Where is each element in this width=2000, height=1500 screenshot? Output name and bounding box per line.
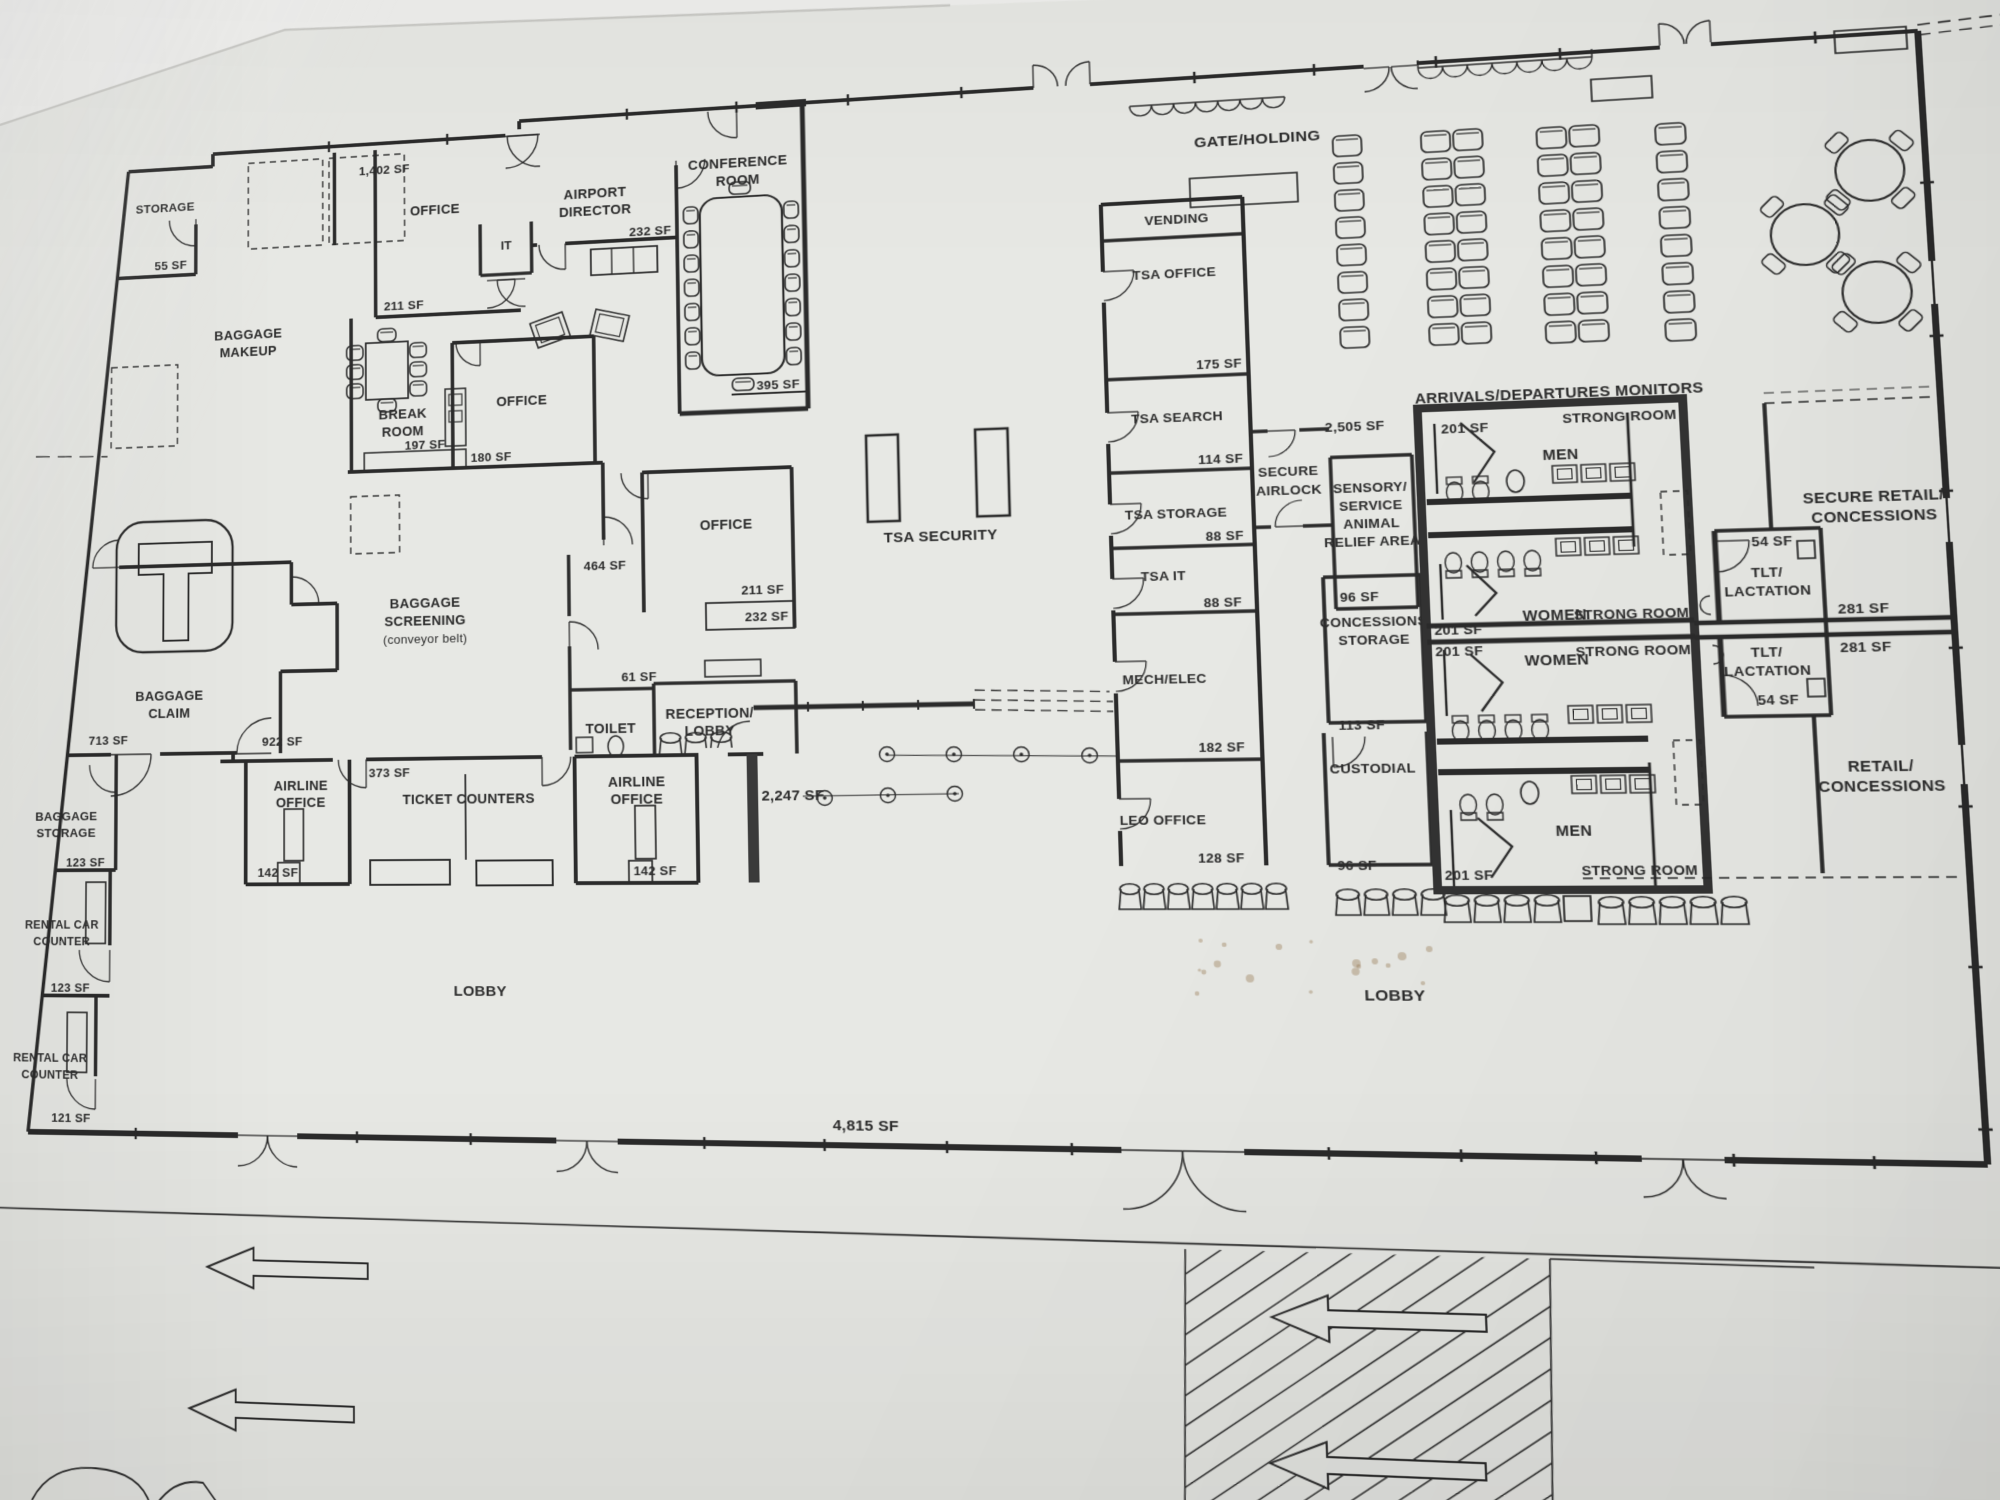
svg-text:128 SF: 128 SF	[1198, 852, 1245, 866]
svg-text:TICKET COUNTERS: TICKET COUNTERS	[402, 791, 534, 808]
svg-text:OFFICE: OFFICE	[496, 392, 547, 409]
svg-text:121 SF: 121 SF	[51, 1112, 90, 1126]
svg-text:TLT/: TLT/	[1750, 646, 1782, 661]
svg-text:LEO OFFICE: LEO OFFICE	[1120, 814, 1207, 829]
svg-text:281 SF: 281 SF	[1840, 640, 1892, 656]
svg-text:201 SF: 201 SF	[1435, 645, 1483, 660]
svg-text:RENTAL CAR: RENTAL CAR	[25, 919, 99, 932]
svg-text:OFFICE: OFFICE	[410, 201, 460, 219]
svg-text:OFFICE: OFFICE	[700, 516, 753, 533]
svg-text:STORAGE: STORAGE	[36, 827, 96, 840]
svg-text:LOBBY: LOBBY	[454, 982, 507, 999]
svg-text:CUSTODIAL: CUSTODIAL	[1329, 762, 1416, 777]
svg-text:142 SF: 142 SF	[258, 867, 299, 880]
svg-text:BAGGAGE: BAGGAGE	[35, 811, 97, 824]
svg-text:STRONG ROOM: STRONG ROOM	[1575, 643, 1691, 660]
svg-text:LACTATION: LACTATION	[1724, 584, 1811, 601]
svg-text:STORAGE: STORAGE	[1338, 633, 1410, 649]
svg-text:COUNTER: COUNTER	[33, 936, 90, 949]
svg-text:SERVICE: SERVICE	[1339, 498, 1403, 514]
svg-text:ANIMAL: ANIMAL	[1343, 517, 1400, 533]
svg-text:TLT/: TLT/	[1751, 566, 1783, 581]
svg-text:IT: IT	[501, 240, 512, 253]
svg-text:142 SF: 142 SF	[633, 865, 676, 879]
svg-text:RENTAL CAR: RENTAL CAR	[13, 1052, 87, 1066]
svg-text:RELIEF AREA: RELIEF AREA	[1324, 534, 1421, 551]
svg-text:AIRLOCK: AIRLOCK	[1256, 483, 1323, 499]
svg-text:MEN: MEN	[1555, 822, 1592, 839]
svg-text:LOBBY: LOBBY	[1364, 986, 1426, 1004]
svg-text:113 SF: 113 SF	[1338, 719, 1385, 734]
svg-text:CONCESSIONS: CONCESSIONS	[1818, 777, 1946, 796]
svg-text:61 SF: 61 SF	[621, 671, 657, 685]
svg-text:373 SF: 373 SF	[369, 767, 410, 781]
svg-text:4,815 SF: 4,815 SF	[832, 1116, 899, 1135]
svg-text:MEN: MEN	[1542, 446, 1579, 464]
svg-text:BREAK: BREAK	[379, 406, 427, 423]
svg-text:922 SF: 922 SF	[262, 736, 303, 750]
svg-text:2,505 SF: 2,505 SF	[1325, 419, 1385, 435]
svg-text:54 SF: 54 SF	[1751, 534, 1793, 550]
svg-text:TSA SECURITY: TSA SECURITY	[884, 526, 998, 546]
svg-text:(conveyor belt): (conveyor belt)	[383, 632, 467, 647]
svg-text:232 SF: 232 SF	[629, 224, 671, 239]
svg-text:201 SF: 201 SF	[1445, 869, 1494, 884]
svg-text:RETAIL/: RETAIL/	[1847, 757, 1915, 775]
svg-text:MECH/ELEC: MECH/ELEC	[1122, 672, 1207, 687]
svg-text:88 SF: 88 SF	[1206, 529, 1245, 544]
svg-text:BAGGAGE: BAGGAGE	[135, 688, 203, 704]
svg-text:182 SF: 182 SF	[1198, 741, 1245, 756]
svg-text:232 SF: 232 SF	[745, 610, 789, 624]
svg-text:123 SF: 123 SF	[51, 982, 90, 995]
svg-text:SENSORY/: SENSORY/	[1333, 480, 1408, 496]
svg-text:MAKEUP: MAKEUP	[220, 343, 277, 360]
svg-text:211 SF: 211 SF	[741, 583, 784, 598]
svg-text:CLAIM: CLAIM	[148, 706, 190, 722]
svg-text:55 SF: 55 SF	[155, 259, 187, 273]
svg-text:114 SF: 114 SF	[1198, 452, 1244, 467]
svg-text:96 SF: 96 SF	[1337, 859, 1377, 873]
svg-text:395 SF: 395 SF	[756, 378, 800, 393]
svg-text:SCREENING: SCREENING	[384, 612, 466, 629]
svg-text:RECEPTION/: RECEPTION/	[665, 705, 754, 722]
svg-text:TOILET: TOILET	[585, 720, 636, 736]
svg-text:88 SF: 88 SF	[1204, 596, 1243, 611]
svg-text:713 SF: 713 SF	[89, 735, 128, 748]
svg-text:96 SF: 96 SF	[1340, 590, 1379, 605]
svg-text:ROOM: ROOM	[382, 423, 424, 440]
svg-text:AIRLINE: AIRLINE	[608, 774, 666, 790]
svg-text:STRONG ROOM: STRONG ROOM	[1581, 864, 1698, 879]
svg-text:201 SF: 201 SF	[1434, 623, 1482, 638]
svg-text:54 SF: 54 SF	[1757, 693, 1799, 708]
svg-text:STRONG ROOM: STRONG ROOM	[1574, 606, 1690, 623]
svg-text:123 SF: 123 SF	[66, 857, 105, 870]
svg-text:SECURE: SECURE	[1258, 464, 1319, 480]
svg-text:175 SF: 175 SF	[1196, 357, 1242, 373]
svg-text:201 SF: 201 SF	[1441, 421, 1489, 437]
svg-text:COUNTER: COUNTER	[21, 1068, 78, 1082]
svg-text:180 SF: 180 SF	[471, 451, 512, 465]
svg-text:AIRLINE: AIRLINE	[274, 778, 328, 794]
svg-text:464 SF: 464 SF	[584, 559, 627, 573]
svg-text:2,247 SF: 2,247 SF	[761, 786, 824, 804]
svg-text:TSA IT: TSA IT	[1141, 570, 1186, 585]
svg-text:281 SF: 281 SF	[1837, 601, 1889, 617]
svg-text:211 SF: 211 SF	[384, 299, 424, 314]
svg-text:ROOM: ROOM	[716, 172, 760, 190]
svg-text:CONCESSIONS: CONCESSIONS	[1320, 614, 1428, 631]
svg-text:BAGGAGE: BAGGAGE	[390, 595, 461, 612]
